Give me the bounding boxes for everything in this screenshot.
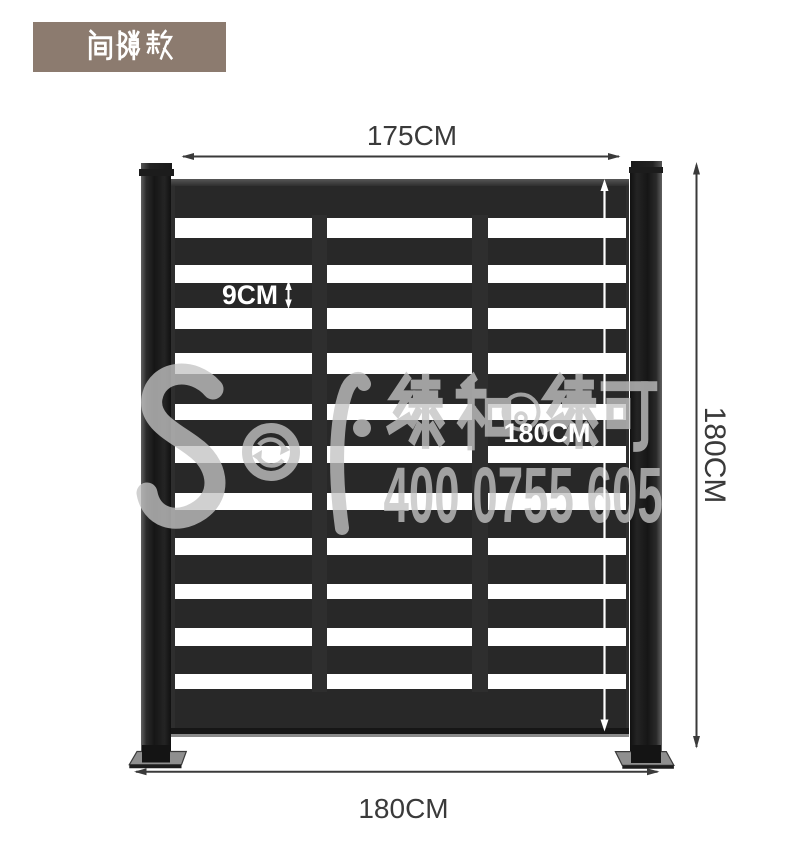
svg-text:180CM: 180CM bbox=[698, 407, 731, 504]
svg-text:9CM: 9CM bbox=[222, 280, 278, 310]
svg-text:175CM: 175CM bbox=[367, 120, 457, 151]
svg-text:180CM: 180CM bbox=[503, 418, 590, 448]
svg-text:180CM: 180CM bbox=[358, 793, 448, 824]
